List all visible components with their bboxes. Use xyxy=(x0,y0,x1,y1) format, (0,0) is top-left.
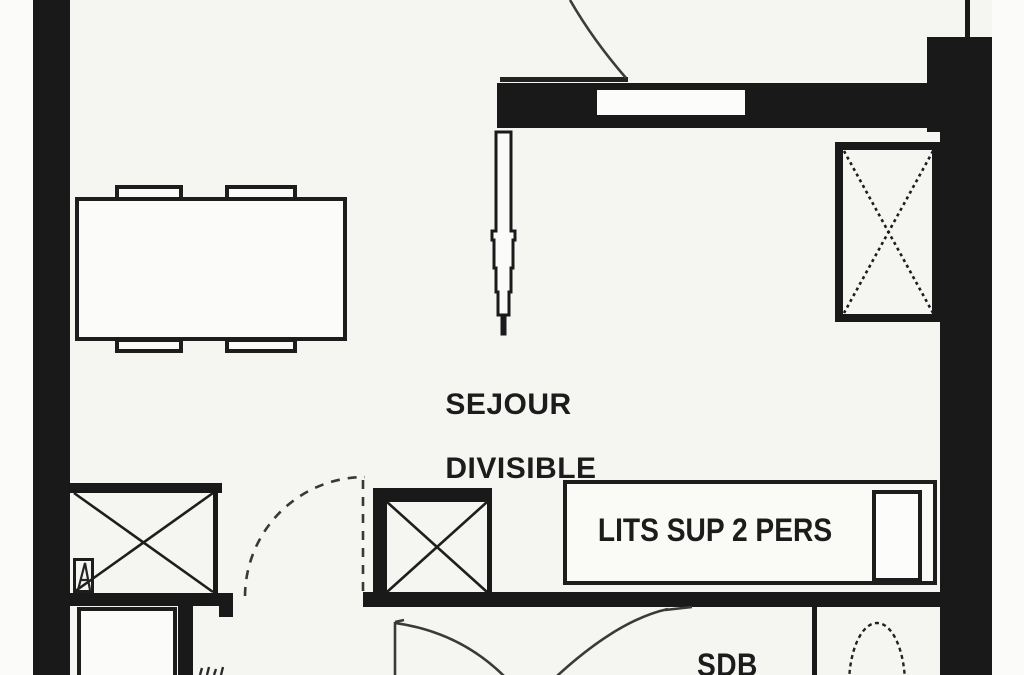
closet-left-top-bar xyxy=(70,483,222,493)
closet-left-right-edge xyxy=(213,483,218,593)
dining-table xyxy=(75,197,347,341)
door-swing-bathroom xyxy=(557,607,692,675)
wall-door-jamb xyxy=(219,593,233,617)
bed-label: LITS SUP 2 PERS xyxy=(585,514,845,546)
wall-partition-sdb xyxy=(812,607,817,675)
wall-bottom-left-bar xyxy=(68,593,233,606)
door-swing-kitchen-arc xyxy=(570,0,626,78)
direction-arrow xyxy=(492,132,515,334)
door-swing-hall xyxy=(395,620,505,675)
bottom-edge-ticks xyxy=(200,667,223,675)
wall-top-lip xyxy=(500,77,628,82)
paper-edge-left xyxy=(0,0,33,675)
wardrobe-crossed-top-right xyxy=(835,142,940,322)
room-label-sejour: SEJOUR DIVISIBLE xyxy=(410,357,597,517)
room-label-sejour-line1: SEJOUR xyxy=(445,388,571,421)
wall-stub-line-top-right xyxy=(965,0,970,40)
hinge-detail-box xyxy=(73,558,94,593)
room-label-sejour-line2: DIVISIBLE xyxy=(445,452,596,485)
paper-edge-right xyxy=(992,0,1024,675)
wall-bottom-sejour xyxy=(363,592,940,607)
wall-right-exterior xyxy=(940,128,992,675)
wall-hall-vertical xyxy=(178,604,193,675)
wall-left-exterior xyxy=(33,0,70,675)
shower-tray xyxy=(77,607,177,675)
door-swing-dashed-sejour xyxy=(245,477,365,596)
wall-corner-block-top-right xyxy=(927,37,992,132)
closet-center-left-edge xyxy=(373,488,387,595)
floor-plan: LITS SUP 2 PERS xyxy=(0,0,1024,675)
pillow xyxy=(872,490,922,582)
room-label-sdb: SDB xyxy=(697,649,758,675)
closet-left-cross xyxy=(74,493,213,592)
window-opening xyxy=(597,90,745,115)
toilet-oval xyxy=(849,623,905,675)
